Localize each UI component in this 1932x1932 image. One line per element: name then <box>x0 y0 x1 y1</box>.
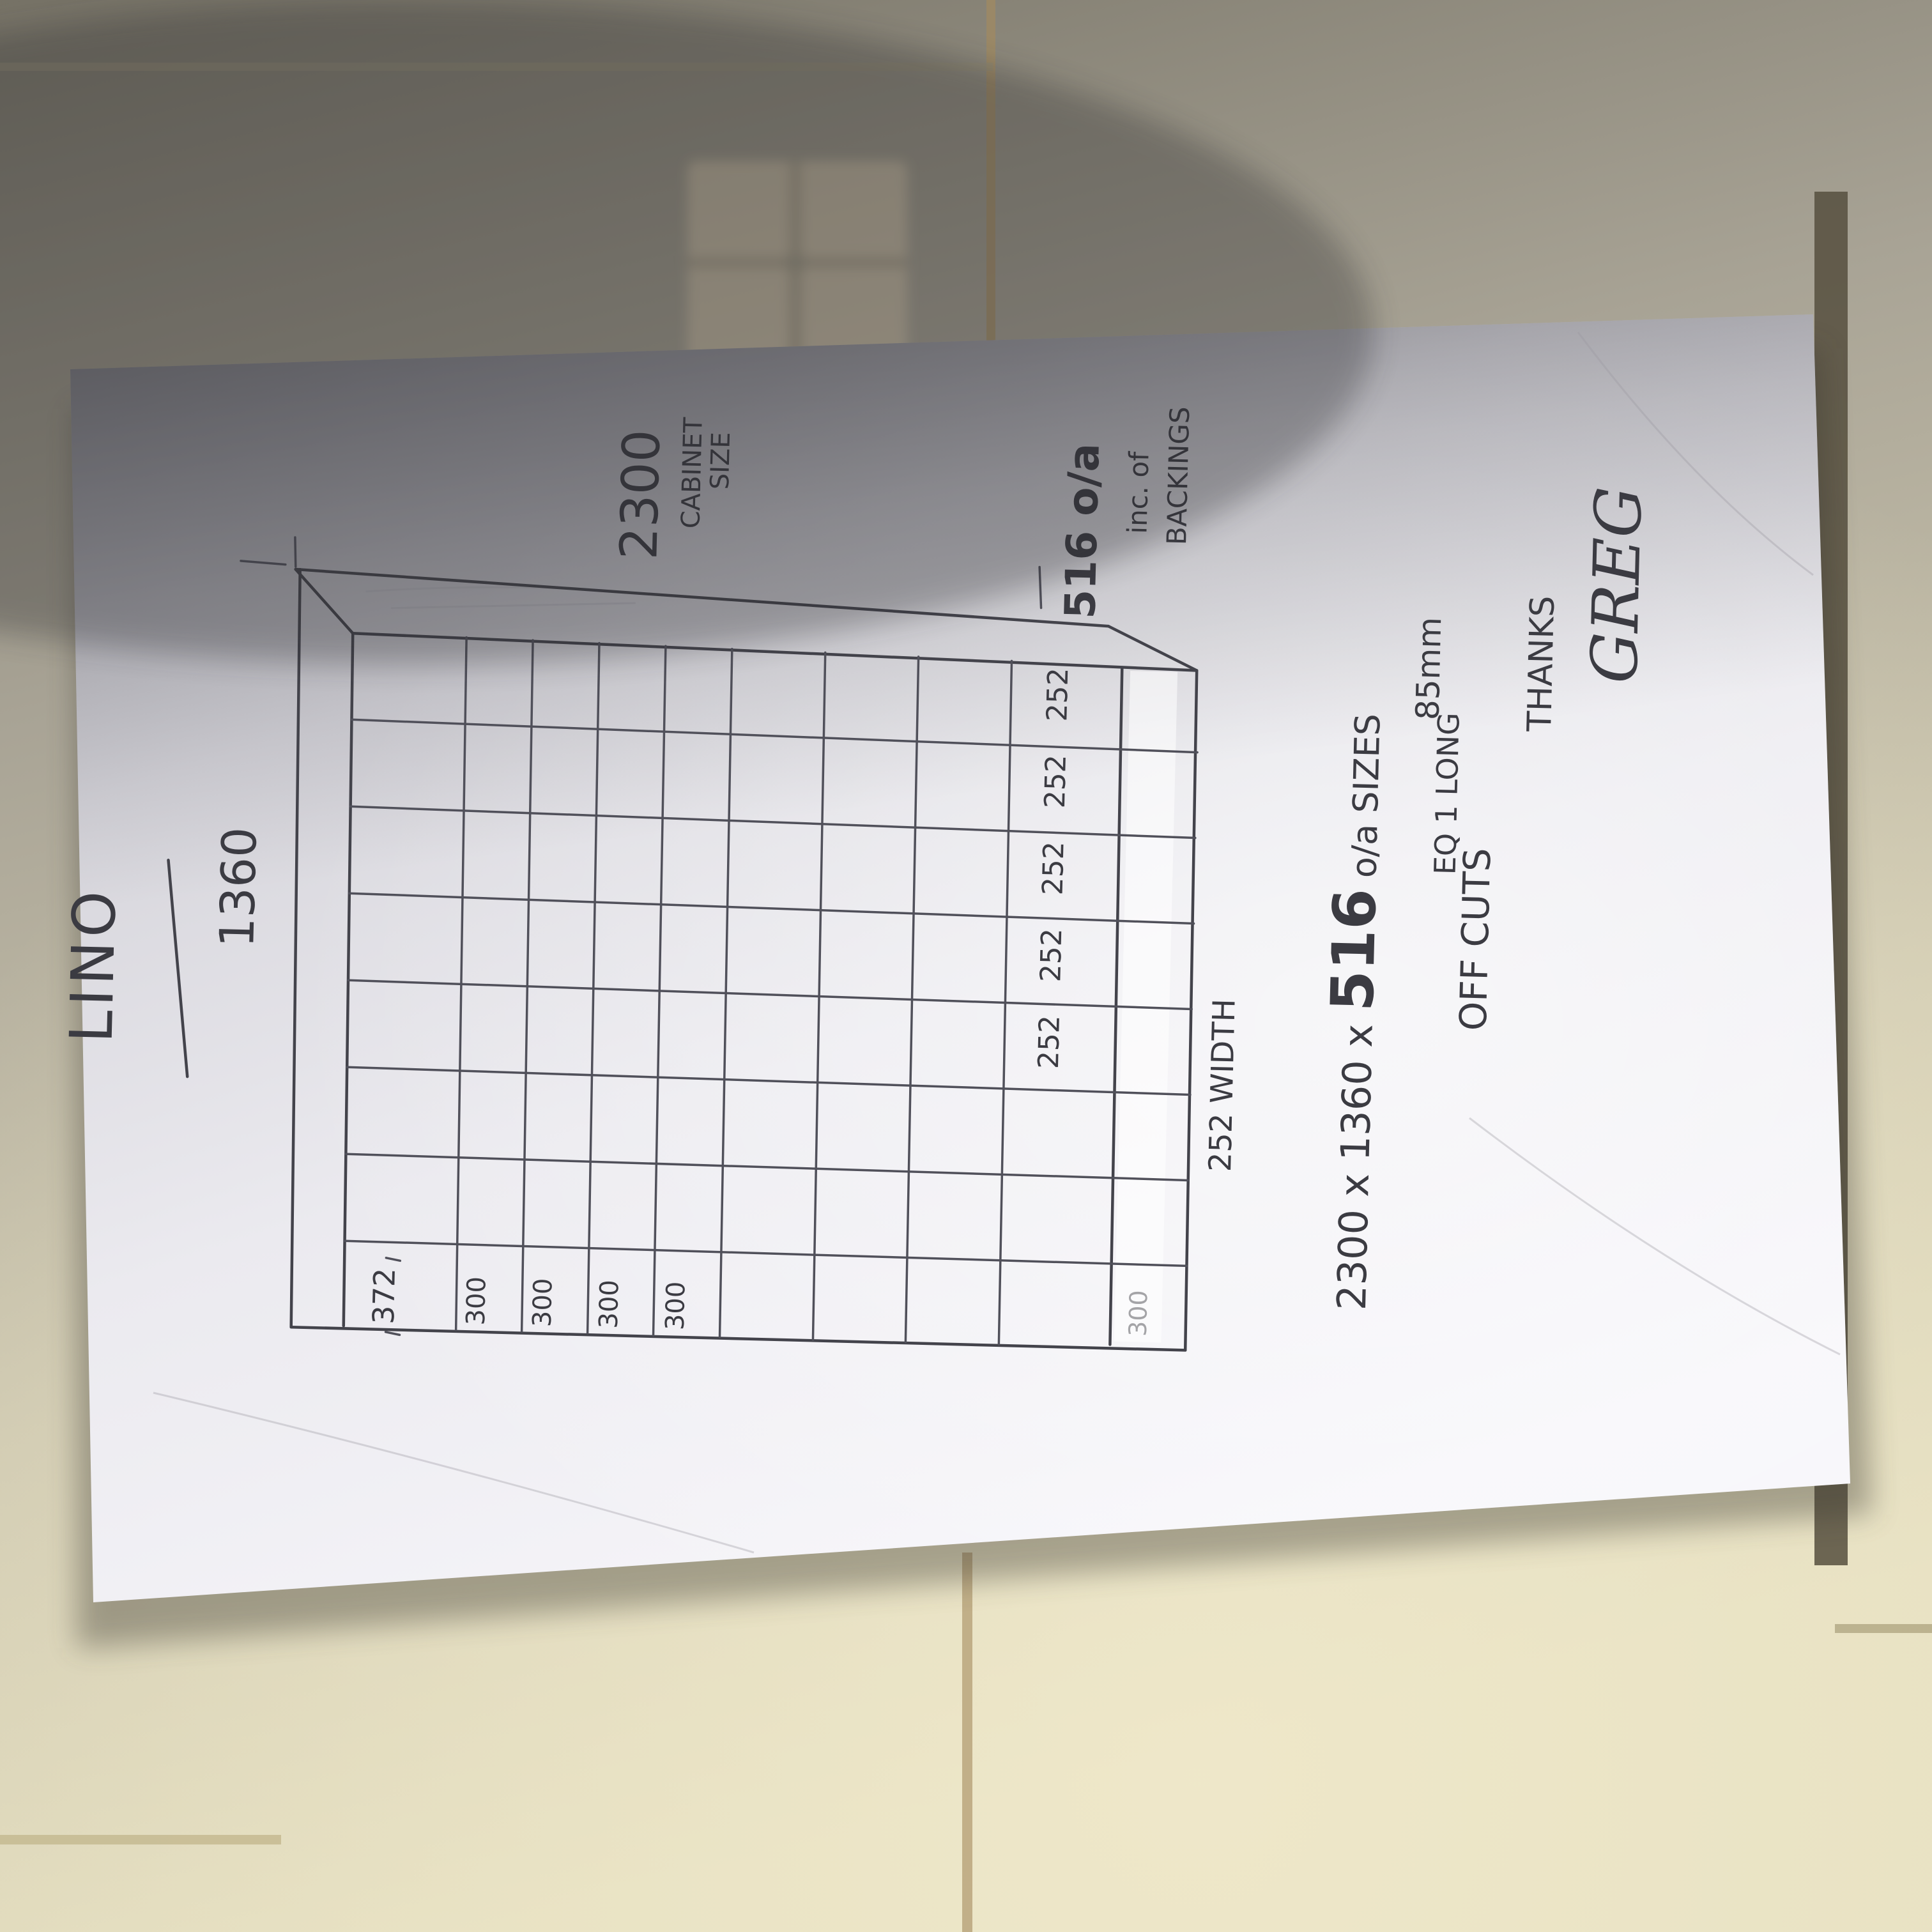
row-label-300-1: 300 <box>461 1276 492 1326</box>
col-label-252-3: 252 <box>1037 841 1071 896</box>
col-label-252-5: 252 <box>1032 1015 1066 1069</box>
scene: LINO 1360 2300 CABINET SIZE 516 o/a inc.… <box>0 0 1932 1932</box>
col-label-252-1: 252 <box>1041 668 1075 722</box>
note-sizes-part3: o/a SIZES <box>1344 713 1388 889</box>
grout-line-horizontal-bottomleft <box>0 1835 281 1844</box>
row-label-372: 372 <box>366 1268 402 1324</box>
note-sizes-part2: 516 <box>1318 888 1390 1013</box>
signoff-name: GREG <box>1577 486 1656 684</box>
row-label-300-2: 300 <box>528 1278 558 1327</box>
signoff-thanks: THANKS <box>1521 595 1562 733</box>
row-label-300-4: 300 <box>661 1281 691 1330</box>
photo-of-hand-drawn-cabinet-sketch: LINO 1360 2300 CABINET SIZE 516 o/a inc.… <box>0 0 1932 1932</box>
note-sizes-part1: 2300 x 1360 x <box>1328 1011 1382 1310</box>
sketch-title: LINO <box>57 886 129 1043</box>
note-eq-1-long: EQ 1 LONG <box>1428 712 1466 875</box>
grout-line-vertical-bottom <box>962 1552 972 1932</box>
width-dimension-label: 1360 <box>210 827 268 948</box>
col-label-252-2: 252 <box>1039 755 1073 809</box>
column-dim-label: 252 WIDTH <box>1202 999 1243 1172</box>
col-label-252-4: 252 <box>1034 928 1068 983</box>
row-label-300-3: 300 <box>594 1280 625 1329</box>
note-85mm: 85mm <box>1409 617 1448 720</box>
bottom-band-label-300: 300 <box>1124 1290 1153 1337</box>
grout-line-horizontal-bottomright <box>1835 1624 1932 1633</box>
